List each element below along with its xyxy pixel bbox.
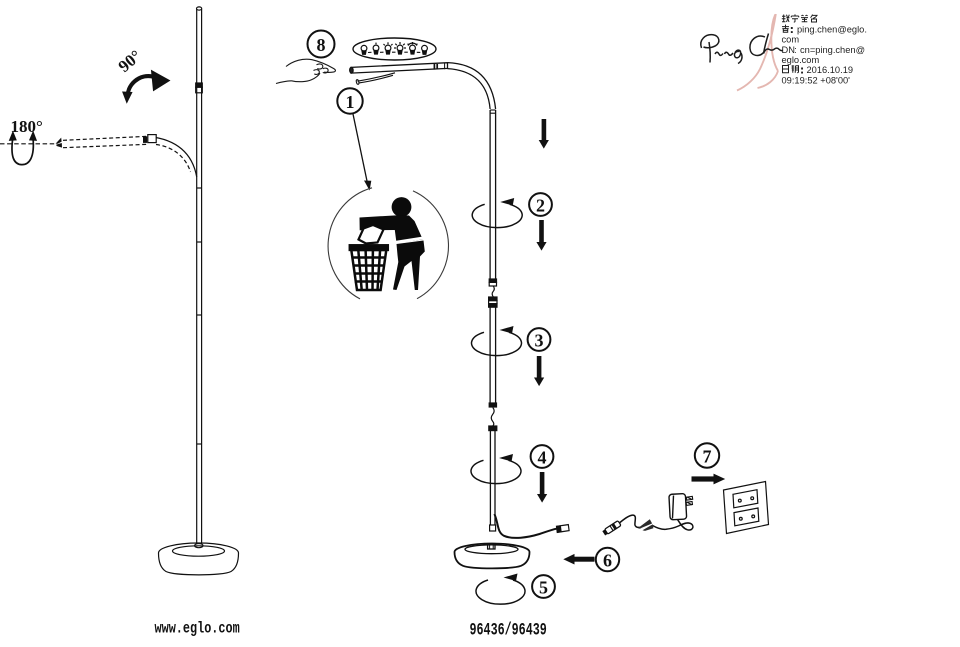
svg-text:09:19:52 +08'00': 09:19:52 +08'00' bbox=[782, 75, 851, 85]
svg-text:4: 4 bbox=[538, 447, 547, 467]
svg-text:ping.chen@eglo.: ping.chen@eglo. bbox=[797, 24, 867, 34]
svg-text:3: 3 bbox=[535, 330, 544, 350]
svg-text:8: 8 bbox=[317, 35, 326, 55]
svg-text:180°: 180° bbox=[11, 117, 43, 136]
svg-text:2: 2 bbox=[536, 195, 545, 215]
svg-text::: : bbox=[794, 45, 797, 55]
svg-text:7: 7 bbox=[703, 447, 712, 467]
svg-text:6: 6 bbox=[603, 550, 612, 570]
svg-text::: : bbox=[791, 24, 794, 34]
svg-text:eglo.com: eglo.com bbox=[782, 55, 820, 65]
svg-text:DN: DN bbox=[782, 45, 795, 55]
svg-text:5: 5 bbox=[539, 577, 548, 597]
svg-text:cn=ping.chen@: cn=ping.chen@ bbox=[800, 45, 865, 55]
svg-text:2016.10.19: 2016.10.19 bbox=[807, 65, 854, 75]
svg-text:96436/96439: 96436/96439 bbox=[470, 622, 547, 641]
svg-text::: : bbox=[801, 65, 804, 75]
svg-text:com: com bbox=[782, 35, 800, 45]
svg-text:www.eglo.com: www.eglo.com bbox=[155, 620, 240, 638]
svg-text:1: 1 bbox=[346, 92, 355, 112]
svg-text:90°: 90° bbox=[115, 46, 145, 76]
